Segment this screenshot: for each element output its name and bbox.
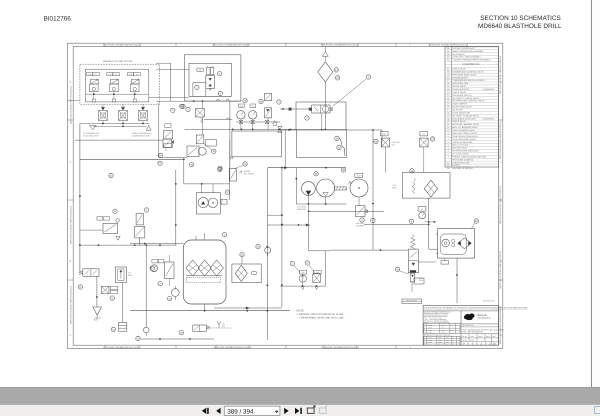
svg-text:SERVICING LEGEND GRAPHICS DECA: SERVICING LEGEND GRAPHICS DECAL [70,285,73,324]
svg-text:MASTER VALVE: MASTER VALVE [452,147,468,150]
svg-text:VARIABLE VOLUME OPTION: VARIABLE VOLUME OPTION [103,60,133,63]
svg-text:BULK HEAD VENT: BULK HEAD VENT [83,134,99,137]
svg-text:PUMP: PUMP [356,175,362,178]
svg-text:GAGE SNIFTER: GAGE SNIFTER [452,103,467,106]
svg-text:1500 RPM: 1500 RPM [297,208,306,211]
svg-text:OIL LEVEL GAGE: OIL LEVEL GAGE [452,152,469,155]
svg-text:BLOW DOWN VALVE: BLOW DOWN VALVE [452,106,472,109]
svg-text:150: 150 [383,133,386,136]
svg-text:SERVICING LEGEND GRAPHICS DECA: SERVICING LEGEND GRAPHICS DECAL [103,44,142,47]
svg-text:MD6640 BLASTHOLE DRILL: MD6640 BLASTHOLE DRILL [478,23,562,30]
svg-text:SERVICING LEGEND GRAPHICS DECA: SERVICING LEGEND GRAPHICS DECAL [499,120,502,159]
svg-text:GPM: GPM [128,274,133,277]
svg-text:TEMPERATURE SWITCH 180 DEG: TEMPERATURE SWITCH 180 DEG [452,79,485,82]
svg-text:PRESSURE GAGE VALVE: PRESSURE GAGE VALVE [452,73,477,76]
svg-text:1-66 RPM: 1-66 RPM [356,225,365,228]
svg-text:FILL PUMP: FILL PUMP [244,172,254,175]
svg-text:FLOW INDICATOR: FLOW INDICATOR [452,88,470,91]
svg-text:AIR PRESSURE CONTROL VALVE: AIR PRESSURE CONTROL VALVE [452,100,485,103]
svg-text:SOL.: SOL. [392,143,397,146]
svg-text:CHECK VALVE: CHECK VALVE [452,67,466,70]
svg-text:BALL CUT VALVE: BALL CUT VALVE [452,144,469,147]
svg-text:CONVEYOR LUBE: CONVEYOR LUBE [452,161,470,164]
svg-text:SERVICING LEGEND GRAPHICS DECA: SERVICING LEGEND GRAPHICS DECAL [70,85,73,124]
svg-text:CASE / AUX. TANK ASSEMBLY: CASE / AUX. TANK ASSEMBLY [452,56,481,59]
svg-text:188: 188 [199,69,202,72]
svg-text:BALL VLV BEARING VALVE: BALL VLV BEARING VALVE [452,126,478,129]
svg-text:CIRCULATION PUMP: CIRCULATION PUMP [452,141,472,144]
svg-text:OIL FILTER: OIL FILTER [452,109,463,112]
svg-text:TRUE PRESSURE GAGE: TRUE PRESSURE GAGE [452,138,476,141]
svg-text:GPM: GPM [419,279,424,282]
svg-text:AIR PRESSURE INDICATOR: AIR PRESSURE INDICATOR [452,150,479,153]
svg-text:VENT SILENCER VALVE: VENT SILENCER VALVE [452,129,475,132]
svg-text:SECTION 10 SCHEMATICS: SECTION 10 SCHEMATICS [480,15,561,22]
svg-text:SERVICING LEGEND GRAPHICS DECA: SERVICING LEGEND GRAPHICS DECAL [499,55,502,94]
svg-text:OIL COOLER: OIL COOLER [452,53,465,56]
svg-text:SHUT OFF / NORMAL VALVE: SHUT OFF / NORMAL VALVE [452,123,479,126]
svg-text:LEVEL INDICATOR: LEVEL INDICATOR [452,111,470,114]
svg-text:MOTOR: MOTOR [452,164,460,167]
svg-text:BI012766: BI012766 [44,16,72,23]
svg-text:WATER VALVE: WATER VALVE [452,120,466,123]
svg-text:0 0 5 6 1 0 2 8: 0 0 5 6 1 0 2 8 [463,342,496,345]
svg-text:SERVICING LEGEND GRAPHICS DECA: SERVICING LEGEND GRAPHICS DECAL [70,205,73,244]
svg-text:PARTIAL LUBE OIL INJECTION UNI: PARTIAL LUBE OIL INJECTION UNIT [452,155,487,158]
svg-text:PRESSURE LINE: PRESSURE LINE [452,82,469,85]
svg-text:36: 36 [421,208,423,211]
svg-text:151: 151 [422,133,425,136]
svg-text:OIL SAFETY / RELIEF VALVE: OIL SAFETY / RELIEF VALVE [452,114,479,117]
svg-text:W RESERVE: W RESERVE [483,88,495,91]
svg-text:SERVICING LEGEND GRAPHICS DECA: SERVICING LEGEND GRAPHICS DECAL [499,250,502,289]
svg-text:International Inc: International Inc [478,316,492,319]
svg-text:389 / 394: 389 / 394 [227,408,254,415]
svg-text:CHECK VALVE: CHECK VALVE [452,91,466,94]
svg-text:GPM: GPM [392,187,397,190]
svg-text:DISCHARGE OIL FIL/SEP: DISCHARGE OIL FIL/SEP [452,117,476,120]
svg-text:1 - 1: 1 - 1 [493,342,497,345]
svg-text:MACHINE SCHEDULE: MACHINE SCHEDULE [452,167,473,170]
svg-text:PSI: PSI [240,105,243,108]
svg-text:PSI: PSI [251,105,254,108]
svg-text:SERVICING LEGEND GRAPHICS DECA: SERVICING LEGEND GRAPHICS DECAL [103,346,142,349]
svg-text:FOR BEARING, GEAR, AND SEAL LU: FOR BEARING, GEAR, AND SEAL LUBE. [300,316,345,319]
svg-text:TRUE RESOLUTION VALVE: TRUE RESOLUTION VALVE [452,135,478,138]
svg-text:PRESSURE CONTROL: PRESSURE CONTROL [452,158,474,161]
svg-text:HYD OIL COOLER & A/C: HYD OIL COOLER & A/C [452,47,475,50]
svg-text:COMPONENTS: COMPONENTS [462,63,480,66]
svg-text:THERMOMETER: THERMOMETER [452,76,468,79]
svg-text:FILL: FILL [222,325,226,328]
svg-text:SERVICING LEGEND GRAPHICS DECA: SERVICING LEGEND GRAPHICS DECAL [499,305,502,344]
svg-text:RELIEF VALVE: RELIEF VALVE [452,85,466,88]
svg-text:SERVICING LEGEND GRAPHICS DECA: SERVICING LEGEND GRAPHICS DECAL [429,44,468,47]
svg-text:PRESSURE SWITCH: PRESSURE SWITCH [452,94,472,97]
svg-text:HYD-LUBE SCHEMATIC: HYD-LUBE SCHEMATIC [462,331,483,334]
svg-text:W RESERVE: W RESERVE [483,117,495,120]
svg-text:COMBINATION CONTROL VALVE: COMBINATION CONTROL VALVE [452,70,484,73]
svg-text:SERVICING LEGEND GRAPHICS DECA: SERVICING LEGEND GRAPHICS DECAL [214,346,253,349]
svg-text:COOLER THERMAL BYPASS ASSEMBLY: COOLER THERMAL BYPASS ASSEMBLY [452,59,491,62]
svg-text:OIL SAFETY / RELIEF VALVE: OIL SAFETY / RELIEF VALVE [452,97,479,100]
svg-text:INLET BUTTERFLY VALVE: INLET BUTTERFLY VALVE [452,132,477,135]
svg-text:FINAL COMPRESSOR ASSEMBLY: FINAL COMPRESSOR ASSEMBLY [452,50,484,53]
svg-text:LOWER BRAKE VENT: LOWER BRAKE VENT [132,134,151,137]
svg-text:SERVICING LEGEND GRAPHICS DECA: SERVICING LEGEND GRAPHICS DECAL [499,185,502,224]
svg-text:Bucyrus: Bucyrus [478,314,488,317]
